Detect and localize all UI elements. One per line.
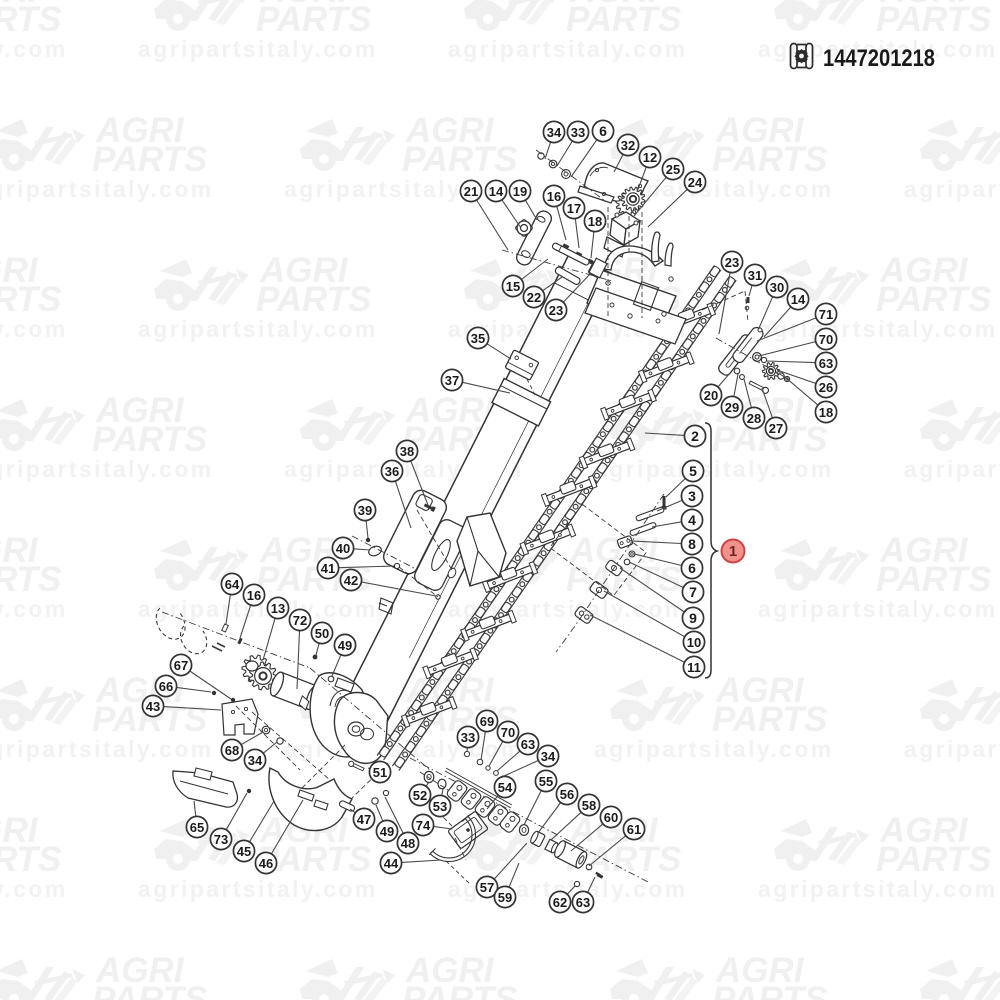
svg-text:22: 22 [527,290,541,305]
svg-text:47: 47 [357,812,371,827]
svg-text:16: 16 [247,588,261,603]
svg-text:44: 44 [384,856,399,871]
svg-text:1: 1 [729,543,737,560]
svg-text:agripartsitaly.com: agripartsitaly.com [758,876,998,902]
svg-text:24: 24 [688,175,703,190]
svg-text:18: 18 [588,214,602,229]
svg-text:31: 31 [748,268,762,283]
svg-text:71: 71 [819,307,833,322]
svg-text:72: 72 [293,613,307,628]
svg-text:2: 2 [691,428,699,444]
svg-text:agripartsitaly.com: agripartsitaly.com [0,176,214,202]
svg-text:agripartsitaly.com: agripartsitaly.com [758,316,998,342]
svg-text:3: 3 [688,488,696,504]
svg-text:69: 69 [480,714,494,729]
svg-text:agripartsitaly.com: agripartsitaly.com [0,736,214,762]
svg-text:12: 12 [643,150,657,165]
svg-text:20: 20 [704,388,718,403]
svg-text:30: 30 [770,280,784,295]
svg-text:agripartsitaly.com: agripartsitaly.com [0,36,68,62]
svg-text:53: 53 [433,799,447,814]
svg-text:agripartsitaly.com: agripartsitaly.com [0,456,214,482]
svg-text:15: 15 [506,279,520,294]
svg-text:55: 55 [539,774,553,789]
svg-text:49: 49 [380,824,394,839]
svg-text:61: 61 [627,822,641,837]
svg-text:agripartsitaly.com: agripartsitaly.com [0,876,68,902]
svg-text:agripartsitaly.com: agripartsitaly.com [904,176,1000,202]
svg-text:38: 38 [400,444,414,459]
svg-text:60: 60 [604,810,618,825]
svg-text:16: 16 [547,189,561,204]
svg-text:6: 6 [688,560,696,576]
svg-text:agripartsitaly.com: agripartsitaly.com [758,596,998,622]
svg-text:26: 26 [819,380,833,395]
svg-text:73: 73 [214,832,228,847]
svg-text:14: 14 [791,292,806,307]
svg-text:74: 74 [416,818,431,833]
svg-text:agripartsitaly.com: agripartsitaly.com [448,36,688,62]
svg-text:58: 58 [582,798,596,813]
svg-text:62: 62 [553,895,567,910]
svg-text:37: 37 [445,373,459,388]
svg-text:36: 36 [385,464,399,479]
svg-text:70: 70 [501,725,515,740]
svg-text:33: 33 [571,125,585,140]
svg-text:10: 10 [687,635,701,650]
svg-text:66: 66 [159,679,173,694]
svg-text:18: 18 [819,405,833,420]
svg-text:agripartsitaly.com: agripartsitaly.com [138,316,378,342]
svg-text:agripartsitaly.com: agripartsitaly.com [904,456,1000,482]
svg-text:48: 48 [401,836,415,851]
svg-text:34: 34 [248,753,263,768]
svg-text:46: 46 [259,856,273,871]
svg-text:67: 67 [174,658,188,673]
svg-text:5: 5 [689,463,697,479]
svg-text:agripartsitaly.com: agripartsitaly.com [0,316,68,342]
svg-text:54: 54 [498,780,513,795]
svg-text:agripartsitaly.com: agripartsitaly.com [0,596,68,622]
svg-text:7: 7 [689,584,697,600]
svg-text:65: 65 [190,820,204,835]
svg-text:28: 28 [747,411,761,426]
svg-text:27: 27 [769,421,783,436]
svg-text:13: 13 [271,601,285,616]
svg-text:23: 23 [549,303,563,318]
svg-text:4: 4 [688,512,696,528]
svg-text:agripartsitaly.com: agripartsitaly.com [594,456,834,482]
svg-text:50: 50 [315,626,329,641]
svg-text:29: 29 [725,400,739,415]
svg-text:21: 21 [464,184,478,199]
svg-text:40: 40 [336,541,350,556]
svg-text:33: 33 [461,730,475,745]
svg-text:63: 63 [521,737,535,752]
svg-text:34: 34 [547,125,562,140]
svg-text:52: 52 [413,788,427,803]
svg-text:42: 42 [344,573,358,588]
svg-text:32: 32 [621,138,635,153]
svg-text:1447201218: 1447201218 [823,45,935,72]
svg-text:68: 68 [225,743,239,758]
svg-text:41: 41 [321,561,335,576]
svg-text:59: 59 [498,890,512,905]
svg-text:14: 14 [489,184,504,199]
svg-text:25: 25 [666,162,680,177]
svg-text:51: 51 [373,765,387,780]
svg-text:agripartsitaly.com: agripartsitaly.com [594,736,834,762]
svg-text:63: 63 [819,356,833,371]
svg-text:17: 17 [567,201,581,216]
svg-text:9: 9 [689,610,697,626]
svg-text:63: 63 [576,895,590,910]
svg-text:70: 70 [819,332,833,347]
svg-text:agripartsitaly.com: agripartsitaly.com [138,36,378,62]
svg-text:agripartsitaly.com: agripartsitaly.com [138,876,378,902]
svg-text:11: 11 [687,660,701,675]
svg-text:6: 6 [599,123,607,139]
svg-text:35: 35 [471,331,485,346]
svg-text:23: 23 [725,255,739,270]
svg-text:19: 19 [513,184,527,199]
svg-text:64: 64 [225,577,240,592]
svg-text:8: 8 [688,536,696,552]
svg-text:34: 34 [541,749,556,764]
svg-text:56: 56 [560,787,574,802]
svg-text:45: 45 [237,844,251,859]
svg-text:39: 39 [358,503,372,518]
svg-text:agripartsitaly.com: agripartsitaly.com [904,736,1000,762]
svg-text:43: 43 [146,699,160,714]
svg-text:57: 57 [480,880,494,895]
svg-text:49: 49 [338,638,352,653]
